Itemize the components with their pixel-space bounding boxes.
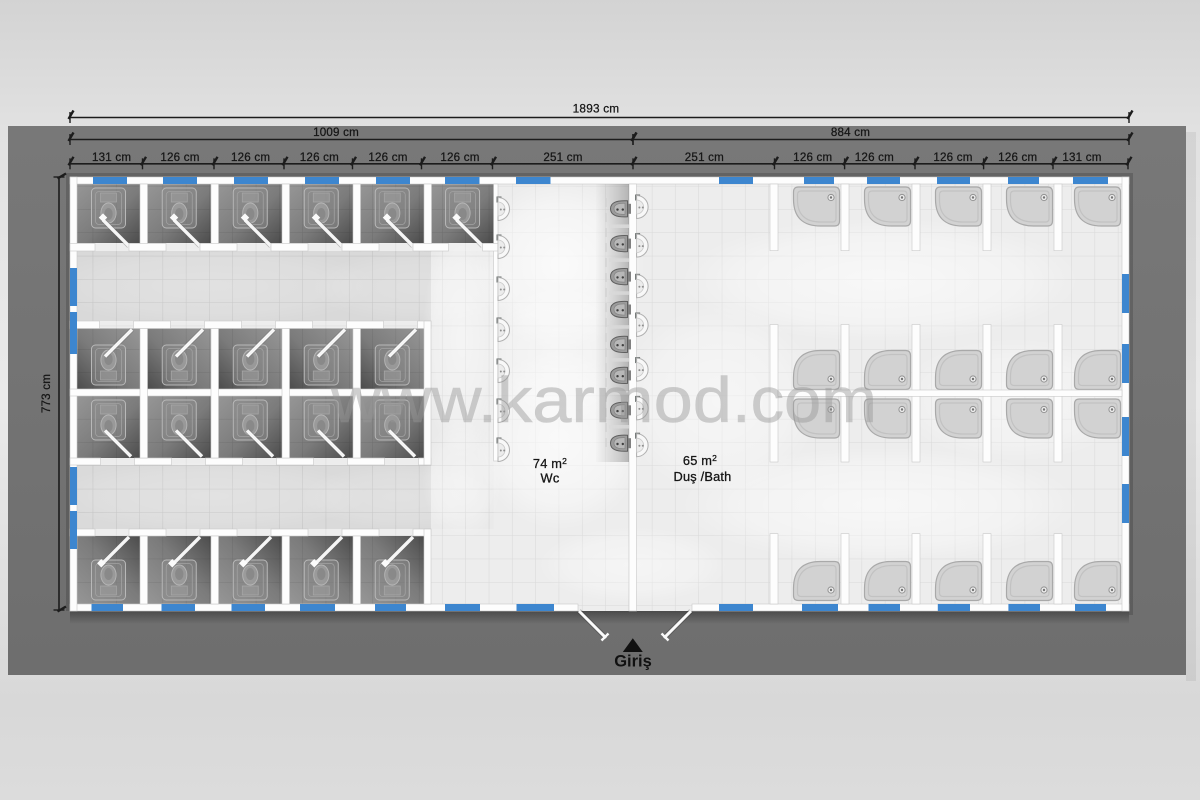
- svg-text:126 cm: 126 cm: [793, 151, 832, 164]
- svg-text:131 cm: 131 cm: [92, 151, 131, 164]
- svg-text:884 cm: 884 cm: [831, 126, 870, 139]
- svg-text:www.karmod.com: www.karmod.com: [330, 364, 877, 436]
- svg-text:251 cm: 251 cm: [543, 151, 582, 164]
- svg-text:1009 cm: 1009 cm: [313, 126, 359, 139]
- svg-text:773 cm: 773 cm: [40, 374, 53, 413]
- svg-text:Duş /Bath: Duş /Bath: [674, 469, 732, 484]
- svg-text:131 cm: 131 cm: [1062, 151, 1101, 164]
- svg-text:Giriş: Giriş: [614, 653, 652, 671]
- svg-text:126 cm: 126 cm: [998, 151, 1037, 164]
- svg-text:251 cm: 251 cm: [685, 151, 724, 164]
- svg-text:1893 cm: 1893 cm: [573, 102, 620, 116]
- svg-text:65 m2: 65 m2: [683, 453, 717, 468]
- svg-text:126 cm: 126 cm: [440, 151, 479, 164]
- svg-text:126 cm: 126 cm: [368, 151, 407, 164]
- svg-text:126 cm: 126 cm: [300, 151, 339, 164]
- svg-text:126 cm: 126 cm: [160, 151, 199, 164]
- svg-text:Wc: Wc: [541, 471, 560, 486]
- svg-text:126 cm: 126 cm: [933, 151, 972, 164]
- svg-text:126 cm: 126 cm: [231, 151, 270, 164]
- svg-text:126 cm: 126 cm: [855, 151, 894, 164]
- svg-text:74 m2: 74 m2: [533, 456, 567, 471]
